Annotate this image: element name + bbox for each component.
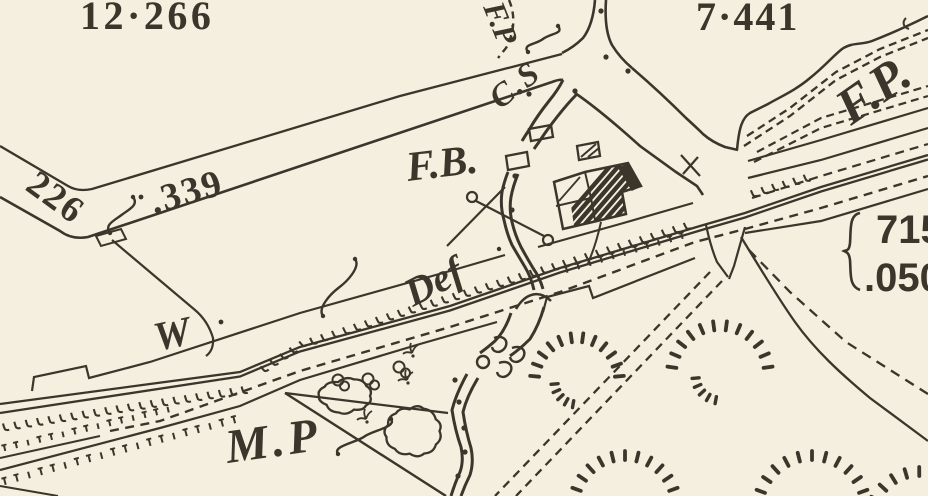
- svg-text:7·441: 7·441: [696, 0, 799, 39]
- svg-text:715: 715: [876, 208, 928, 252]
- svg-text:.050: .050: [864, 256, 928, 300]
- svg-text:F.B.: F.B.: [403, 137, 481, 192]
- svg-text:12·266: 12·266: [80, 0, 214, 38]
